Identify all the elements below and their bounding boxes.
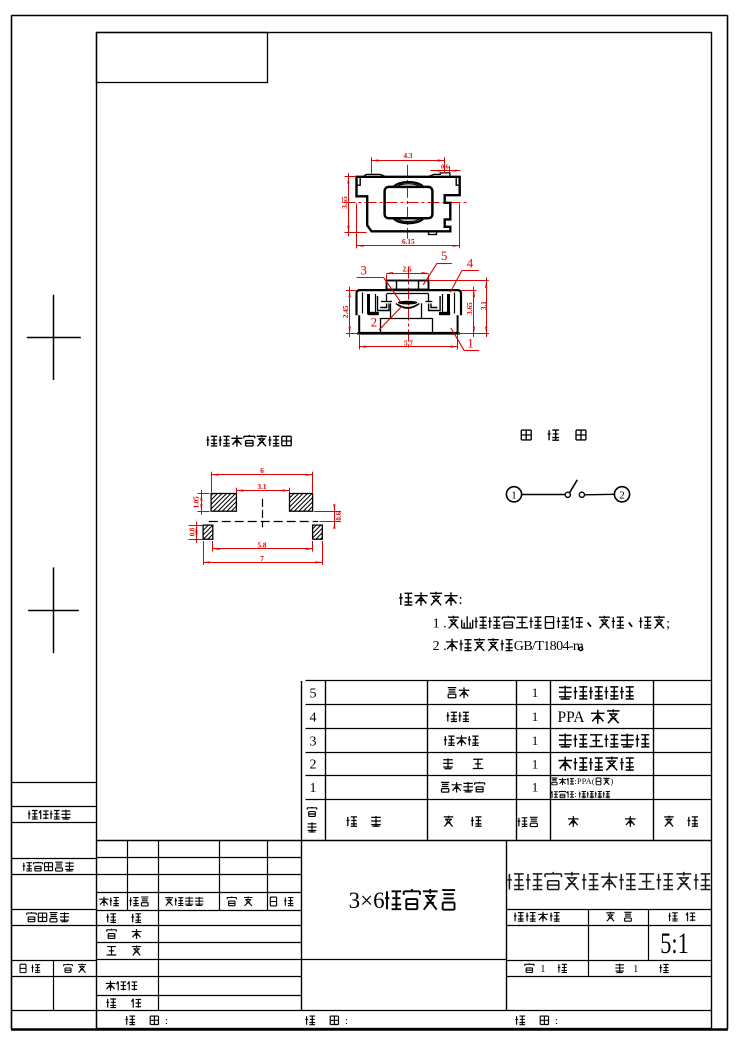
svg-text::: :: [345, 1015, 348, 1027]
svg-text:5:1: 5:1: [660, 927, 688, 960]
svg-text:2.: 2.: [433, 639, 447, 654]
svg-text::: :: [165, 1015, 168, 1027]
svg-text:1.: 1.: [433, 616, 447, 631]
svg-text:2: 2: [371, 315, 378, 330]
svg-text:2.45: 2.45: [342, 305, 350, 318]
svg-text:4.3: 4.3: [404, 152, 413, 160]
svg-text:3.55: 3.55: [341, 196, 349, 209]
svg-text:5: 5: [441, 248, 448, 263]
svg-text:1: 1: [310, 781, 317, 796]
svg-text:5.7: 5.7: [404, 339, 413, 347]
svg-text:;: ;: [666, 616, 670, 631]
svg-text:PPA: PPA: [558, 709, 588, 726]
svg-text:1: 1: [467, 336, 474, 351]
svg-text:6: 6: [260, 467, 264, 475]
svg-text:1: 1: [628, 964, 644, 975]
svg-text:3.65: 3.65: [466, 302, 474, 315]
svg-text:1: 1: [511, 489, 517, 501]
svg-text:0.8: 0.8: [189, 527, 196, 536]
svg-text:1: 1: [532, 780, 539, 795]
svg-text:1: 1: [532, 733, 539, 748]
svg-text:5.8: 5.8: [258, 542, 267, 550]
svg-text:7: 7: [260, 555, 264, 563]
svg-text:0.6: 0.6: [336, 512, 343, 521]
svg-text:0.6: 0.6: [441, 164, 449, 171]
svg-text:5: 5: [310, 687, 317, 702]
svg-text:1.05: 1.05: [194, 496, 201, 508]
svg-text::: :: [555, 1015, 558, 1027]
svg-text:6.15: 6.15: [402, 238, 415, 246]
svg-text:2: 2: [310, 758, 317, 773]
svg-text::: :: [459, 592, 463, 608]
svg-text:4: 4: [310, 711, 317, 726]
svg-text:3: 3: [360, 263, 367, 278]
svg-text:3×6: 3×6: [349, 888, 385, 913]
svg-text:): ): [611, 777, 614, 786]
svg-text:3.1: 3.1: [258, 483, 267, 491]
svg-text:1: 1: [532, 756, 539, 771]
svg-text:3.1: 3.1: [480, 301, 488, 310]
svg-text:2: 2: [619, 489, 625, 501]
svg-text::: :: [575, 790, 577, 799]
svg-text:2.6: 2.6: [403, 266, 412, 274]
svg-text:3: 3: [310, 734, 317, 749]
svg-text:1: 1: [532, 709, 539, 724]
svg-text:4: 4: [467, 256, 474, 271]
svg-text:GB/T1804-m: GB/T1804-m: [514, 639, 584, 654]
svg-text:1: 1: [538, 964, 549, 975]
svg-text:1: 1: [532, 685, 539, 700]
svg-text::PPA(: :PPA(: [575, 777, 595, 786]
